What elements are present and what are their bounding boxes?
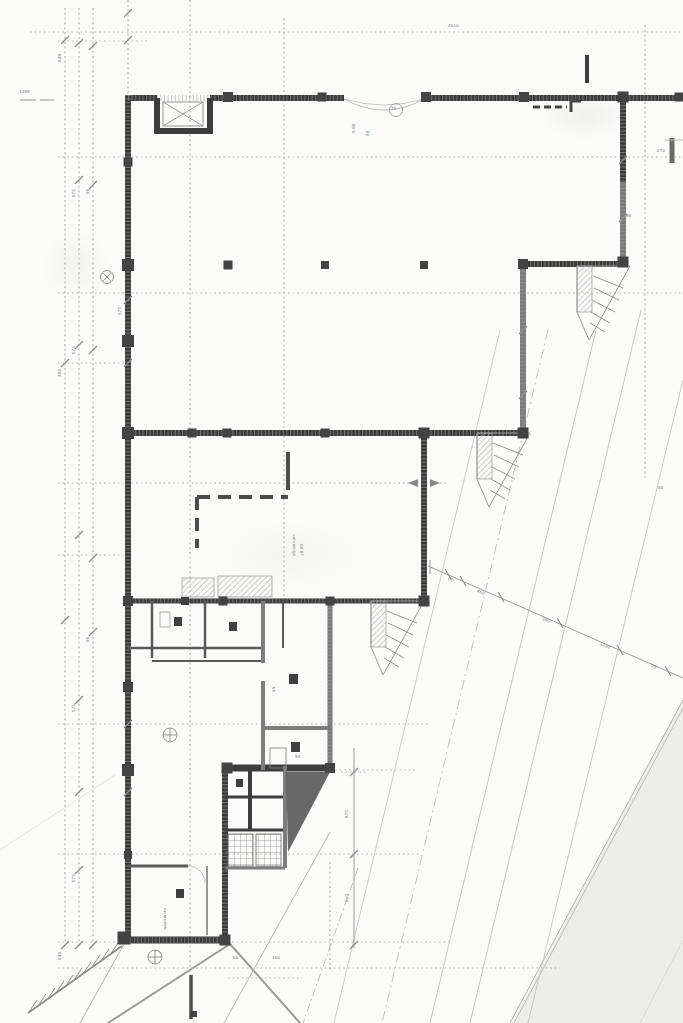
elevator-x-symbol [163,102,203,126]
tiled-floor [256,834,281,866]
room-label-lift: lift [272,687,276,692]
wall-dim-575: 575 [118,307,122,315]
chain-dim-575c: 575 [72,704,76,712]
door-swing [188,866,205,883]
dim-label-topleft: 1399 [19,90,30,94]
entrance-door-swings [344,99,424,117]
dim-label-top: 4510 [448,24,459,28]
chain-dim-575b: 575 [72,346,76,354]
room-label-wash: wasruimte [163,908,167,930]
dashed-partition [197,452,288,548]
road-dimension-chain [428,560,683,678]
ramp-triangle [286,772,330,852]
stair-middle [477,433,530,507]
chain-dim-90a: 90 [86,189,90,194]
exterior-stairs [371,266,630,675]
vert-dim-875: 875 [345,810,349,818]
elevator-shaft [154,98,213,132]
bottom-room [128,866,207,935]
right-dim-60: 60 [658,486,663,490]
vertical-dimension-chain [341,748,368,949]
chain-dim-649b: 649 [58,952,62,960]
door-and-section-marks [533,55,683,163]
chain-dim-90b: 90 [86,637,90,642]
floor-plan-sheet: 1399 4510 270 0.80 90 75 90 showroom ±0.… [0,0,683,1023]
grid-dotted-horizontals [20,32,683,978]
dim-label-90b: 90 [295,755,300,759]
stair-top [577,266,630,340]
dim-label-270: 270 [657,149,665,153]
tiled-floor [228,834,253,866]
vert-dim-910: 910 [345,894,349,902]
bubble-label-75: 75 [391,107,396,111]
chain-dim-360a: 360 [58,369,62,377]
dimension-ticks [61,9,627,949]
bottom-dim-160: 160 [272,956,280,960]
exterior-walls [123,95,683,943]
dim-stack-90: 90 [366,131,370,136]
hatched-wall-strips [182,576,272,597]
level-label: ±0.00 [300,544,304,556]
chain-dim-649a: 649 [58,54,62,62]
plan-drawing [0,0,683,1023]
dim-label-90a: 90 [626,214,631,218]
bottom-dim-60: 60 [233,956,238,960]
stair-bottom [371,601,424,675]
chain-dim-575d: 575 [72,874,76,882]
hatched-boundary-line [28,943,122,1013]
dim-stack-080: 0.80 [352,123,356,133]
room-label-showroom: showroom [292,534,296,556]
chain-dim-575a: 575 [72,189,76,197]
grid-bubbles [101,271,178,965]
